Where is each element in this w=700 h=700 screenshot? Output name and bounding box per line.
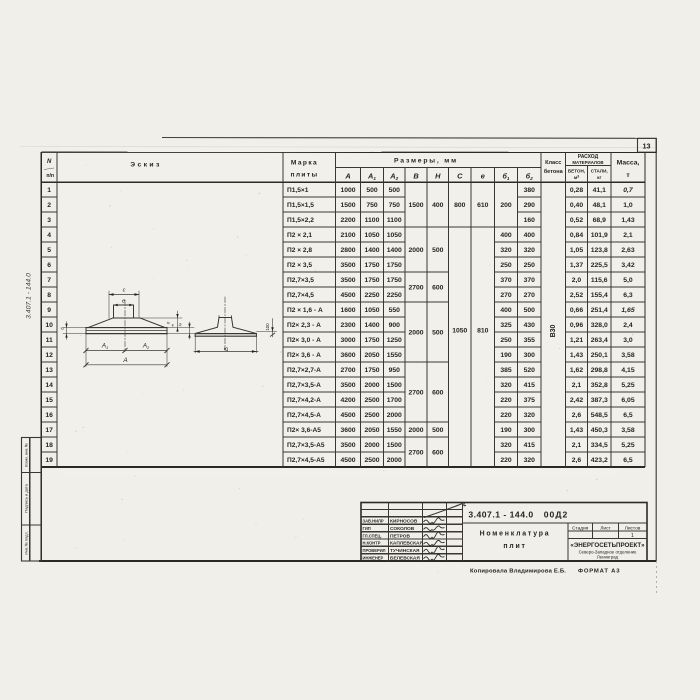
svg-text:1,43: 1,43 [621, 217, 634, 224]
svg-text:2100: 2100 [340, 232, 355, 239]
svg-text:0,7: 0,7 [623, 187, 634, 194]
svg-text:МАТЕРИАЛОВ: МАТЕРИАЛОВ [572, 160, 603, 165]
svg-text:270: 270 [524, 292, 536, 299]
svg-text:0,66: 0,66 [570, 307, 583, 314]
svg-text:2000: 2000 [364, 382, 379, 389]
svg-text:Марка: Марка [291, 160, 318, 167]
svg-text:Размеры, мм: Размеры, мм [394, 158, 458, 165]
svg-text:2,6: 2,6 [572, 412, 582, 419]
svg-text:500: 500 [524, 307, 536, 314]
svg-text:П2× 2,3 - А: П2× 2,3 - А [287, 322, 321, 329]
svg-text:1500: 1500 [408, 202, 423, 209]
svg-text:1500: 1500 [387, 382, 402, 389]
svg-text:430: 430 [524, 322, 536, 329]
svg-text:П2× 3,6-А5: П2× 3,6-А5 [287, 427, 321, 434]
svg-text:300: 300 [524, 352, 536, 359]
svg-text:2700: 2700 [408, 390, 423, 397]
svg-text:325: 325 [500, 322, 512, 329]
svg-text:810: 810 [477, 328, 489, 335]
svg-text:В: В [413, 172, 419, 181]
svg-text:1000: 1000 [340, 187, 355, 194]
svg-text:3500: 3500 [340, 262, 355, 269]
svg-text:2000: 2000 [408, 427, 423, 434]
svg-text:2,1: 2,1 [623, 232, 633, 239]
svg-text:5,0: 5,0 [623, 277, 633, 284]
svg-text:СОКОЛОВ: СОКОЛОВ [390, 526, 415, 532]
svg-text:68,9: 68,9 [593, 217, 606, 224]
svg-text:400: 400 [432, 202, 444, 209]
svg-text:1500: 1500 [387, 442, 402, 449]
svg-text:328,0: 328,0 [591, 322, 608, 329]
svg-text:375: 375 [524, 397, 536, 404]
svg-text:плит: плит [503, 543, 526, 550]
svg-text:ФОРМАТ А3: ФОРМАТ А3 [578, 569, 620, 575]
svg-text:Подпись и дата: Подпись и дата [24, 483, 29, 513]
svg-text:263,4: 263,4 [591, 337, 608, 344]
svg-text:плиты: плиты [290, 172, 318, 179]
svg-text:600: 600 [432, 285, 444, 292]
svg-text:С: С [457, 172, 463, 181]
svg-text:500: 500 [366, 187, 378, 194]
svg-text:е: е [481, 172, 485, 181]
svg-text:П1,5×2,2: П1,5×2,2 [287, 217, 314, 224]
svg-text:2,42: 2,42 [570, 397, 583, 404]
svg-text:1,62: 1,62 [570, 367, 583, 374]
svg-text:1,43: 1,43 [570, 352, 583, 359]
svg-text:6: 6 [47, 262, 51, 269]
svg-text:2300: 2300 [340, 322, 355, 329]
svg-text:3000: 3000 [340, 337, 355, 344]
svg-text:4500: 4500 [340, 292, 355, 299]
svg-text:7: 7 [47, 277, 51, 284]
svg-text:2,52: 2,52 [570, 292, 583, 299]
svg-text:3500: 3500 [340, 382, 355, 389]
svg-text:500: 500 [389, 187, 401, 194]
svg-text:1100: 1100 [365, 217, 380, 224]
svg-text:N: N [47, 159, 52, 165]
svg-text:250: 250 [500, 262, 512, 269]
svg-text:11: 11 [46, 337, 53, 344]
svg-text:250,1: 250,1 [591, 352, 608, 359]
svg-text:1550: 1550 [387, 352, 402, 359]
svg-text:1050: 1050 [364, 307, 379, 314]
svg-text:ИНЖЕНЕР: ИНЖЕНЕР [363, 555, 384, 560]
svg-text:2500: 2500 [364, 457, 379, 464]
svg-text:П2× 3,0 - А: П2× 3,0 - А [287, 337, 321, 344]
svg-text:В: В [224, 347, 230, 351]
svg-text:270: 270 [500, 292, 512, 299]
svg-text:800: 800 [454, 202, 466, 209]
svg-text:17: 17 [45, 427, 53, 434]
svg-text:1550: 1550 [387, 427, 402, 434]
svg-text:КИРНОСОВ: КИРНОСОВ [390, 519, 418, 525]
svg-text:А: А [122, 357, 127, 364]
svg-text:3.407.1 - 144.0: 3.407.1 - 144.0 [468, 510, 533, 520]
svg-text:190: 190 [500, 427, 512, 434]
svg-text:6,5: 6,5 [623, 412, 633, 419]
svg-text:1,43: 1,43 [570, 427, 583, 434]
svg-text:400: 400 [524, 232, 536, 239]
svg-text:П2 × 2,1: П2 × 2,1 [287, 232, 312, 239]
svg-text:320: 320 [500, 442, 512, 449]
svg-text:12: 12 [45, 352, 53, 359]
svg-text:2000: 2000 [408, 247, 423, 254]
svg-text:1400: 1400 [364, 322, 379, 329]
svg-text:1,65: 1,65 [621, 307, 634, 314]
svg-text:Лист: Лист [600, 525, 611, 531]
svg-text:Взам. инв.№: Взам. инв.№ [24, 443, 29, 467]
svg-text:415: 415 [524, 442, 536, 449]
svg-text:Номенклатура: Номенклатура [480, 531, 551, 538]
svg-text:П1,5×1,5: П1,5×1,5 [287, 202, 314, 209]
svg-text:1050: 1050 [452, 328, 467, 335]
svg-text:352,8: 352,8 [591, 382, 608, 389]
svg-text:6,5: 6,5 [623, 457, 633, 464]
svg-text:П2 × 3,5: П2 × 3,5 [287, 262, 312, 269]
svg-text:14: 14 [45, 382, 53, 389]
svg-text:0,28: 0,28 [570, 187, 583, 194]
svg-text:9: 9 [47, 307, 51, 314]
svg-text:1,0: 1,0 [623, 202, 633, 209]
svg-text:5,25: 5,25 [621, 442, 634, 449]
svg-text:2500: 2500 [364, 397, 379, 404]
svg-text:1100: 1100 [387, 217, 402, 224]
svg-text:4: 4 [47, 232, 51, 239]
svg-text:220: 220 [500, 412, 512, 419]
svg-text:387,3: 387,3 [591, 397, 608, 404]
svg-text:П2,7×4,5-А5: П2,7×4,5-А5 [287, 457, 325, 464]
svg-text:251,4: 251,4 [591, 307, 608, 314]
svg-text:370: 370 [500, 277, 512, 284]
svg-text:155,4: 155,4 [591, 292, 608, 299]
svg-text:250: 250 [500, 337, 512, 344]
svg-text:1750: 1750 [364, 262, 379, 269]
svg-text:1750: 1750 [387, 262, 402, 269]
svg-text:41,1: 41,1 [593, 187, 606, 194]
svg-text:225,5: 225,5 [591, 262, 608, 269]
svg-text:2000: 2000 [364, 442, 379, 449]
svg-text:2800: 2800 [340, 247, 355, 254]
svg-text:П2,7×4,5: П2,7×4,5 [287, 292, 314, 299]
svg-text:кг: кг [597, 175, 601, 180]
svg-text:548,5: 548,5 [591, 412, 608, 419]
svg-text:Класс: Класс [545, 160, 561, 166]
svg-text:00Д2: 00Д2 [544, 510, 568, 520]
svg-text:П1,5×1: П1,5×1 [287, 187, 309, 194]
svg-text:2,0: 2,0 [572, 277, 582, 284]
svg-text:1,37: 1,37 [570, 262, 583, 269]
svg-text:334,5: 334,5 [591, 442, 608, 449]
svg-text:450,3: 450,3 [591, 427, 608, 434]
svg-text:4500: 4500 [340, 457, 355, 464]
svg-text:200: 200 [500, 202, 512, 209]
svg-text:Листов: Листов [625, 525, 641, 531]
svg-text:115,6: 115,6 [591, 277, 608, 284]
svg-text:2,63: 2,63 [621, 247, 634, 254]
svg-text:Стадия: Стадия [572, 525, 589, 531]
svg-text:1: 1 [47, 187, 51, 194]
svg-text:П2 × 1,6 - А: П2 × 1,6 - А [287, 307, 323, 314]
svg-text:П2 × 2,8: П2 × 2,8 [287, 247, 312, 254]
svg-text:2050: 2050 [364, 352, 379, 359]
svg-text:п/п: п/п [46, 173, 54, 179]
svg-text:В30: В30 [550, 324, 557, 337]
svg-text:1400: 1400 [387, 247, 402, 254]
svg-text:2,6: 2,6 [572, 457, 582, 464]
svg-text:160: 160 [524, 217, 536, 224]
svg-text:500: 500 [432, 427, 444, 434]
svg-text:3600: 3600 [340, 352, 355, 359]
svg-text:1750: 1750 [387, 277, 402, 284]
svg-text:3500: 3500 [340, 277, 355, 284]
svg-text:320: 320 [524, 412, 536, 419]
svg-text:1050: 1050 [364, 232, 379, 239]
svg-text:4,15: 4,15 [621, 367, 634, 374]
svg-text:2250: 2250 [387, 292, 402, 299]
svg-text:950: 950 [389, 367, 401, 374]
svg-text:бетона: бетона [544, 168, 564, 175]
svg-text:1: 1 [631, 533, 634, 539]
svg-text:190: 190 [500, 352, 512, 359]
svg-text:101,9: 101,9 [591, 232, 608, 239]
svg-text:298,8: 298,8 [591, 367, 608, 374]
svg-text:2700: 2700 [408, 450, 423, 457]
svg-text:1,05: 1,05 [570, 247, 583, 254]
svg-text:П2,7×3,5-А5: П2,7×3,5-А5 [287, 442, 325, 449]
svg-text:380: 380 [524, 187, 536, 194]
svg-text:2000: 2000 [387, 412, 402, 419]
svg-text:1600: 1600 [340, 307, 355, 314]
svg-text:1050: 1050 [387, 232, 402, 239]
svg-text:423,2: 423,2 [591, 457, 608, 464]
svg-text:8: 8 [47, 292, 51, 299]
svg-text:123,8: 123,8 [591, 247, 608, 254]
svg-text:5: 5 [47, 247, 51, 254]
svg-text:«ЭНЕРГОСЕТЬПРОЕКТ»: «ЭНЕРГОСЕТЬПРОЕКТ» [570, 542, 645, 549]
svg-text:750: 750 [366, 202, 378, 209]
svg-text:220: 220 [500, 397, 512, 404]
svg-text:1400: 1400 [364, 247, 379, 254]
svg-text:3,58: 3,58 [621, 352, 634, 359]
svg-text:2,1: 2,1 [572, 382, 582, 389]
svg-text:2500: 2500 [364, 412, 379, 419]
svg-text:4500: 4500 [340, 412, 355, 419]
svg-text:370: 370 [524, 277, 536, 284]
svg-text:2: 2 [47, 202, 51, 209]
svg-text:2250: 2250 [364, 292, 379, 299]
svg-text:13: 13 [643, 142, 651, 151]
svg-text:2700: 2700 [340, 367, 355, 374]
svg-text:6,3: 6,3 [623, 292, 633, 299]
svg-text:ПЕТРОВ: ПЕТРОВ [390, 533, 410, 539]
svg-text:1750: 1750 [364, 367, 379, 374]
svg-text:П2,7×4,5-А: П2,7×4,5-А [287, 412, 321, 419]
svg-text:3,58: 3,58 [621, 427, 634, 434]
svg-text:ГЛ.СПЕЦ.: ГЛ.СПЕЦ. [363, 533, 382, 538]
svg-text:БЕЛЕВСКАЯ: БЕЛЕВСКАЯ [390, 555, 420, 561]
svg-text:3: 3 [47, 217, 51, 224]
svg-text:500: 500 [432, 247, 444, 254]
svg-text:КАПЛЕВСКАЯ: КАПЛЕВСКАЯ [390, 541, 423, 547]
svg-text:2,4: 2,4 [623, 322, 633, 329]
svg-text:2200: 2200 [340, 217, 355, 224]
svg-text:355: 355 [524, 337, 536, 344]
svg-text:3600: 3600 [340, 427, 355, 434]
svg-text:100: 100 [265, 323, 270, 331]
svg-text:1750: 1750 [364, 277, 379, 284]
svg-text:1250: 1250 [387, 337, 402, 344]
svg-text:0,84: 0,84 [570, 232, 583, 239]
svg-text:220: 220 [500, 457, 512, 464]
svg-text:19: 19 [45, 457, 53, 464]
svg-text:2,1: 2,1 [572, 442, 582, 449]
svg-text:3.407.1 - 144.0: 3.407.1 - 144.0 [26, 273, 33, 319]
svg-text:ЗАВ.НИЛР: ЗАВ.НИЛР [363, 519, 384, 524]
svg-text:1500: 1500 [340, 202, 355, 209]
svg-text:13: 13 [45, 367, 53, 374]
svg-text:48,1: 48,1 [593, 202, 606, 209]
svg-text:е: е [122, 299, 125, 305]
svg-text:500: 500 [432, 330, 444, 337]
svg-text:3500: 3500 [340, 442, 355, 449]
svg-text:250: 250 [524, 262, 536, 269]
svg-text:0,52: 0,52 [570, 217, 583, 224]
svg-text:6,05: 6,05 [621, 397, 634, 404]
svg-text:с: с [123, 288, 126, 294]
svg-text:300: 300 [524, 427, 536, 434]
svg-text:ГИП: ГИП [363, 526, 371, 531]
svg-text:5,25: 5,25 [621, 382, 634, 389]
svg-text:3,42: 3,42 [621, 262, 634, 269]
svg-text:ТУЧИНСКАЯ: ТУЧИНСКАЯ [390, 548, 420, 554]
svg-text:2000: 2000 [387, 457, 402, 464]
svg-text:320: 320 [500, 382, 512, 389]
svg-text:0,40: 0,40 [570, 202, 583, 209]
svg-text:320: 320 [500, 247, 512, 254]
svg-text:550: 550 [389, 307, 401, 314]
svg-text:290: 290 [524, 202, 536, 209]
svg-text:2700: 2700 [408, 285, 423, 292]
svg-text:Ленинград: Ленинград [597, 555, 619, 560]
svg-text:1750: 1750 [364, 337, 379, 344]
svg-text:600: 600 [432, 450, 444, 457]
svg-text:600: 600 [432, 390, 444, 397]
svg-text:16: 16 [45, 412, 53, 419]
svg-text:1,21: 1,21 [570, 337, 583, 344]
svg-text:750: 750 [389, 202, 401, 209]
svg-text:520: 520 [524, 367, 536, 374]
svg-text:415: 415 [524, 382, 536, 389]
svg-text:0,96: 0,96 [570, 322, 583, 329]
svg-text:Эскиз: Эскиз [130, 162, 162, 169]
svg-text:3,0: 3,0 [623, 337, 633, 344]
svg-text:П2,7×3,5: П2,7×3,5 [287, 277, 314, 284]
svg-text:СТАЛИ,: СТАЛИ, [591, 169, 608, 174]
svg-text:4200: 4200 [340, 397, 355, 404]
svg-text:610: 610 [477, 202, 489, 209]
svg-text:П2,7×4,2-А: П2,7×4,2-А [287, 397, 321, 404]
svg-text:400: 400 [500, 307, 512, 314]
svg-text:10: 10 [45, 322, 53, 329]
svg-text:Инв.№ подл.: Инв.№ подл. [24, 531, 29, 555]
svg-text:15: 15 [45, 397, 53, 404]
svg-text:900: 900 [389, 322, 401, 329]
svg-text:А: А [344, 172, 350, 181]
svg-text:2050: 2050 [364, 427, 379, 434]
svg-text:Копировала Владимирова Е.Б.: Копировала Владимирова Е.Б. [470, 569, 566, 575]
svg-text:П2,7×3,5-А: П2,7×3,5-А [287, 382, 321, 389]
svg-text:320: 320 [524, 247, 536, 254]
svg-text:Н.КОНТР: Н.КОНТР [363, 541, 381, 546]
svg-text:400: 400 [500, 232, 512, 239]
svg-text:БЕТОН,: БЕТОН, [568, 169, 585, 174]
svg-text:1700: 1700 [387, 397, 402, 404]
svg-text:П2× 3,6 - А: П2× 3,6 - А [287, 352, 321, 359]
svg-text:Масса,: Масса, [617, 160, 640, 167]
svg-text:18: 18 [45, 442, 53, 449]
svg-text:П2,7×2,7-А: П2,7×2,7-А [287, 367, 321, 374]
svg-text:385: 385 [500, 367, 512, 374]
svg-text:2000: 2000 [408, 330, 423, 337]
svg-text:Н: Н [435, 172, 441, 181]
svg-text:320: 320 [524, 457, 536, 464]
